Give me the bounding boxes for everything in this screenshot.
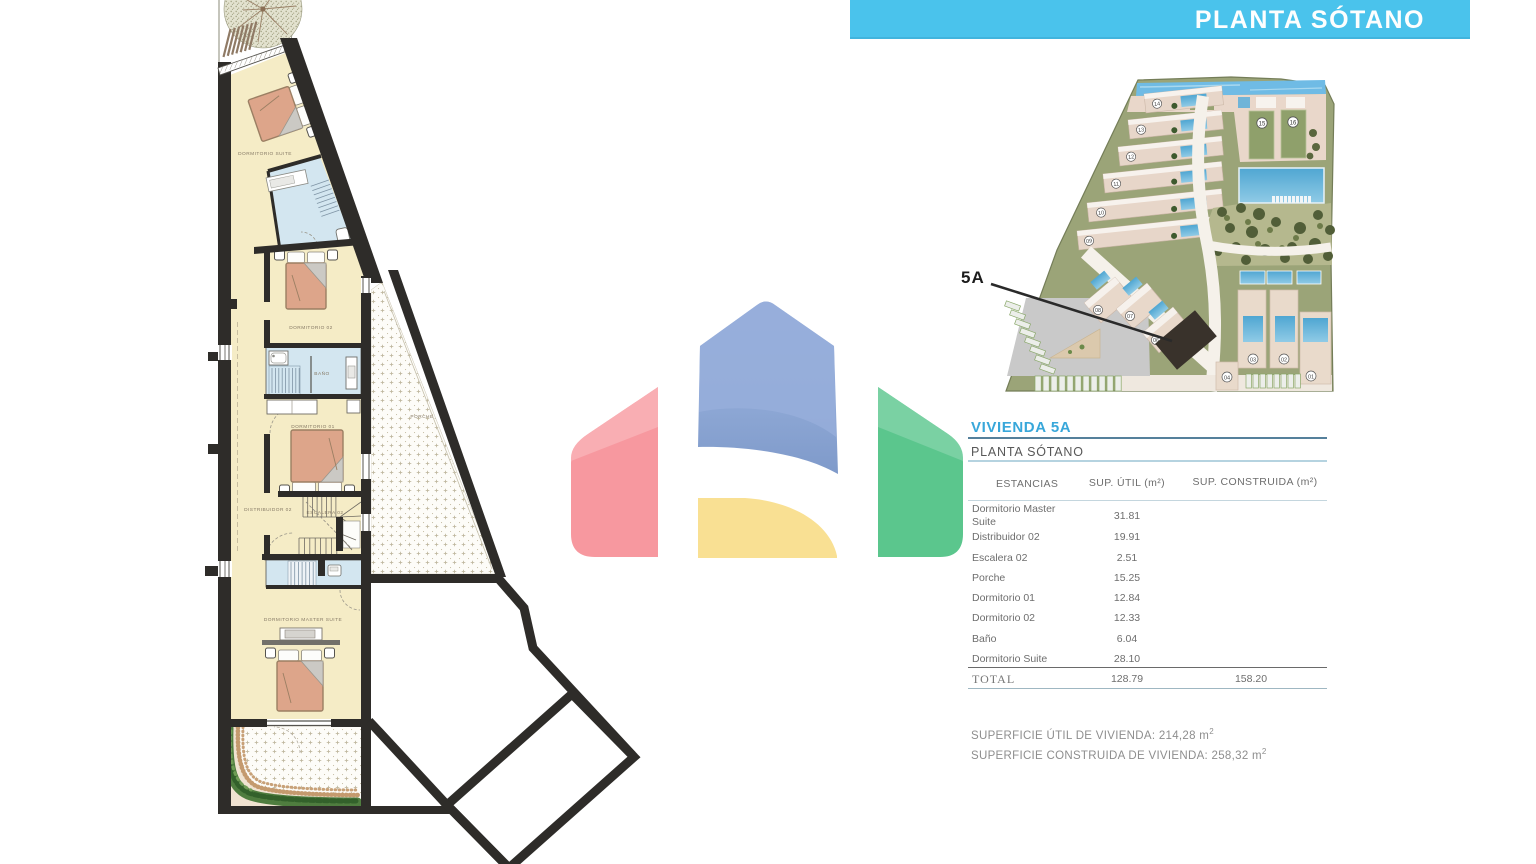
svg-text:09: 09	[1086, 238, 1093, 245]
svg-text:15: 15	[1259, 122, 1266, 128]
svg-text:DORMITORIO SUITE: DORMITORIO SUITE	[238, 151, 292, 157]
svg-text:DORMITORIO 01: DORMITORIO 01	[291, 424, 335, 430]
svg-text:14: 14	[1154, 101, 1161, 108]
svg-text:DISTRIBUIDOR 02: DISTRIBUIDOR 02	[244, 507, 292, 513]
svg-text:03: 03	[1250, 358, 1256, 364]
svg-text:01: 01	[1308, 375, 1314, 381]
svg-text:11: 11	[1113, 181, 1119, 188]
svg-text:12: 12	[1128, 154, 1135, 161]
svg-text:PORCHE: PORCHE	[410, 414, 433, 420]
svg-text:16: 16	[1290, 121, 1297, 127]
svg-text:DORMITORIO 02: DORMITORIO 02	[289, 325, 333, 331]
svg-text:ESCALERA 02: ESCALERA 02	[307, 510, 344, 516]
svg-text:04: 04	[1224, 376, 1230, 382]
svg-text:10: 10	[1098, 210, 1105, 217]
svg-text:BAÑO: BAÑO	[314, 370, 329, 377]
svg-text:07: 07	[1127, 314, 1133, 320]
svg-text:02: 02	[1281, 358, 1287, 364]
svg-text:DORMITORIO MASTER SUITE: DORMITORIO MASTER SUITE	[264, 617, 342, 623]
svg-text:08: 08	[1095, 308, 1101, 314]
svg-text:13: 13	[1138, 127, 1145, 134]
